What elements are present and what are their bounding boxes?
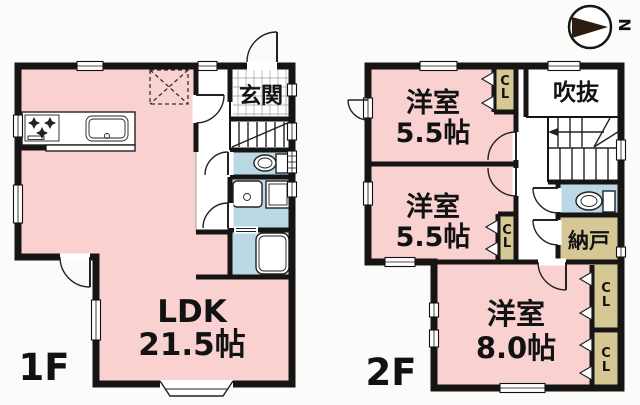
toilet-fixture-1f	[254, 154, 288, 173]
label-room-top-size: 5.5帖	[396, 118, 471, 149]
label-closet-3: CL	[601, 281, 611, 310]
label-ldk-name: LDK	[157, 294, 227, 330]
compass: N	[569, 6, 634, 48]
toilet-fixture-2f	[576, 191, 615, 212]
label-room-mid-name: 洋室	[406, 191, 460, 223]
label-closet-1: CL	[500, 74, 510, 102]
label-room-big-name: 洋室	[487, 297, 545, 331]
entrance-door	[247, 32, 277, 62]
label-room-mid-size: 5.5帖	[396, 222, 471, 253]
label-room-top-name: 洋室	[406, 87, 460, 119]
kitchen-counter	[22, 112, 135, 151]
washer-pan	[266, 181, 290, 208]
bathtub	[256, 233, 289, 274]
label-storage: 納戸	[568, 229, 610, 253]
label-room-big-size: 8.0帖	[476, 331, 556, 365]
label-closet-2: CL	[502, 223, 512, 251]
compass-north-label: N	[615, 18, 634, 31]
vanity-basin	[233, 181, 262, 207]
label-floor-2f: 2F	[365, 351, 416, 394]
label-closet-4: CL	[601, 346, 611, 375]
label-entrance: 玄関	[239, 83, 283, 109]
floor-plan-2f: 洋室 5.5帖 洋室 5.5帖 吹抜 納戸 洋室 8.0帖 2F CL CL C…	[348, 62, 626, 395]
label-floor-1f: 1F	[18, 346, 69, 389]
label-void: 吹抜	[553, 79, 600, 106]
label-ldk-size: 21.5帖	[138, 327, 246, 363]
bay-window	[160, 380, 233, 396]
back-door	[60, 257, 90, 287]
floor-plan-drawing: 玄関 LDK 21.5帖 1F	[0, 0, 640, 405]
floor-plan-1f: 玄関 LDK 21.5帖 1F	[14, 32, 297, 396]
floor-plan-page: 玄関 LDK 21.5帖 1F	[0, 0, 640, 405]
